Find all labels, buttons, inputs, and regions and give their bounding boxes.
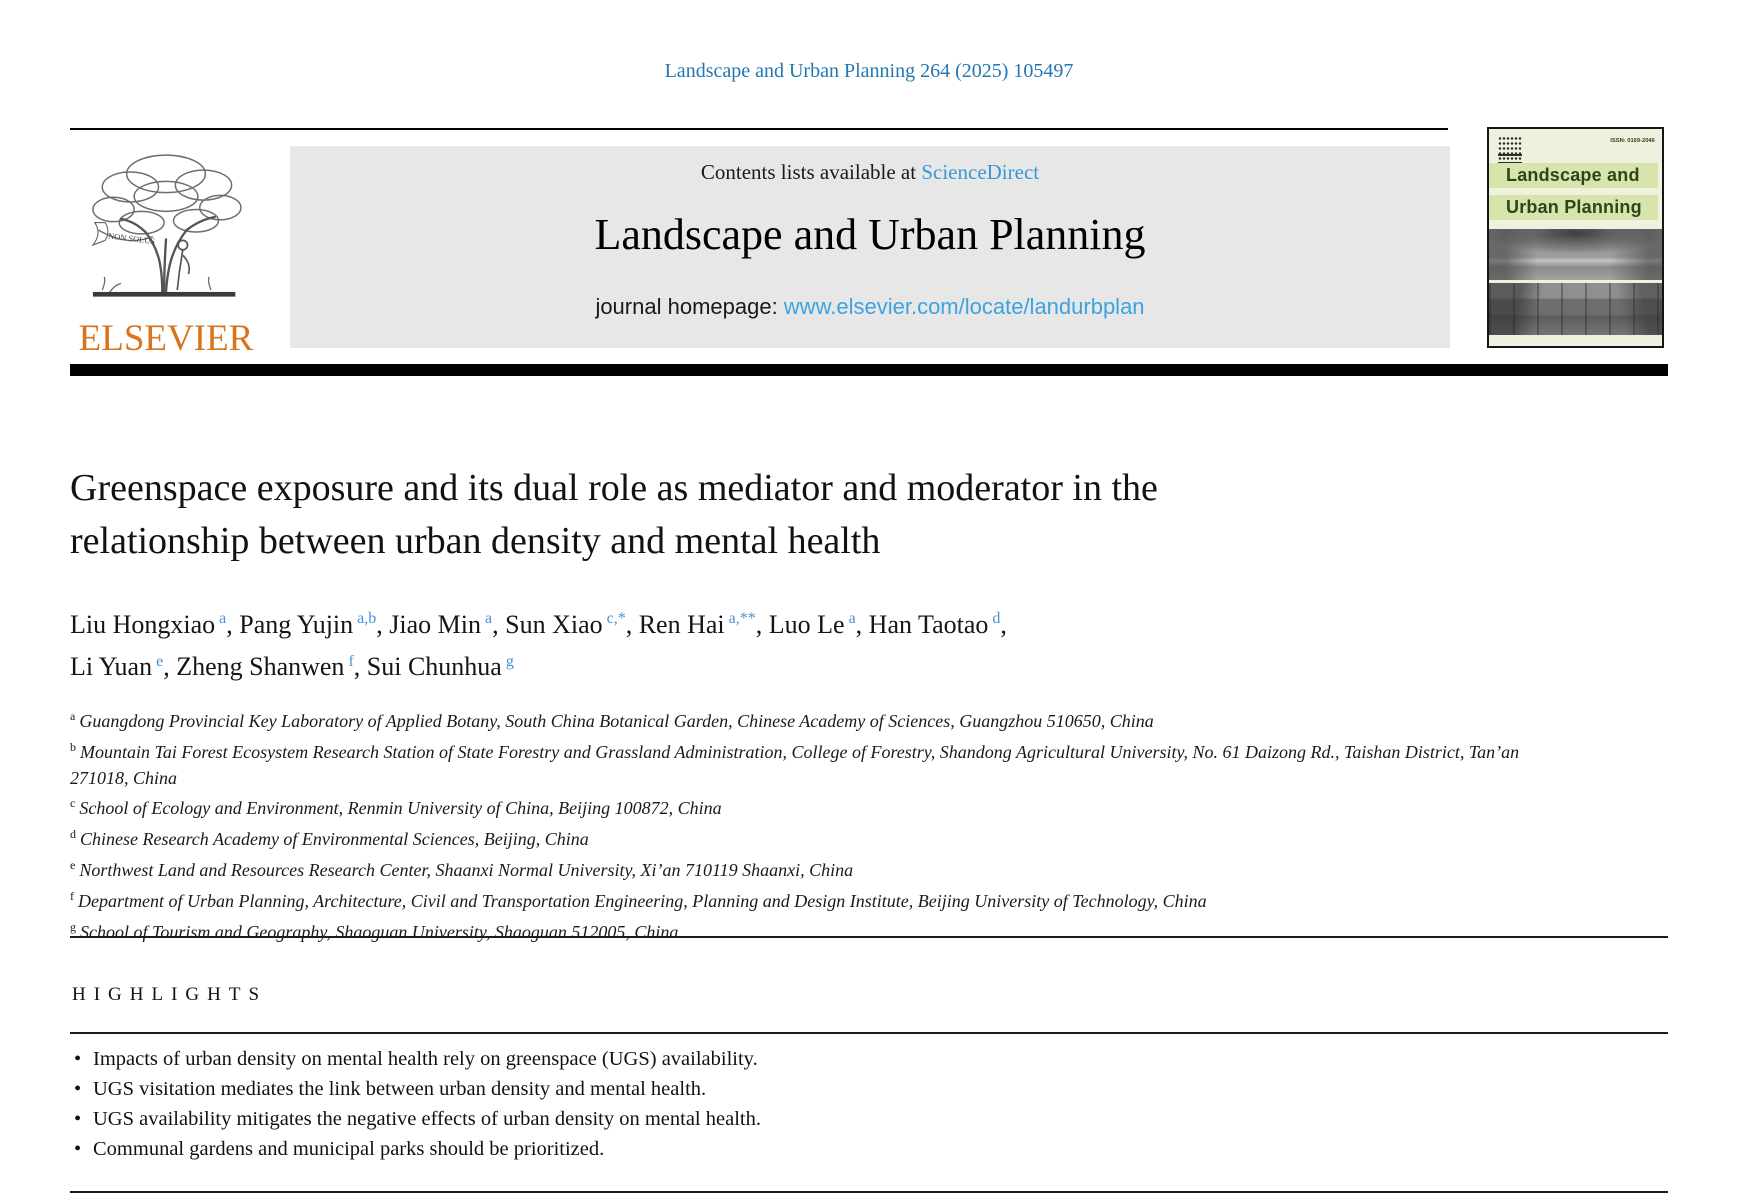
author-separator: , <box>756 610 769 639</box>
affiliation-text: School of Ecology and Environment, Renmi… <box>79 798 721 818</box>
header-thick-bar <box>70 364 1668 376</box>
author-separator: , <box>163 652 176 681</box>
highlights-mid-divider <box>70 1032 1668 1034</box>
author-separator: , <box>492 610 505 639</box>
highlight-item: UGS visitation mediates the link between… <box>72 1074 761 1104</box>
author-affiliation-superscript: c,* <box>607 610 626 627</box>
highlight-item: Communal gardens and municipal parks sho… <box>72 1134 761 1164</box>
affiliation-label: f <box>70 889 74 903</box>
author-affiliation-superscript: a,b <box>357 610 376 627</box>
affiliation-line: aGuangdong Provincial Key Laboratory of … <box>70 704 1525 735</box>
affiliation-line: eNorthwest Land and Resources Research C… <box>70 853 1525 884</box>
author-separator: , <box>626 610 639 639</box>
affiliation-label: b <box>70 740 76 754</box>
affiliation-list: aGuangdong Provincial Key Laboratory of … <box>70 704 1525 945</box>
author-name: Han Taotao <box>869 610 989 639</box>
cover-photo-trees <box>1489 229 1662 280</box>
affiliation-label: c <box>70 796 75 810</box>
author-name: Jiao Min <box>389 610 481 639</box>
journal-homepage-link[interactable]: www.elsevier.com/locate/landurbplan <box>784 294 1145 319</box>
author-affiliation-superscript: a,** <box>729 610 756 627</box>
affiliation-text: Guangdong Provincial Key Laboratory of A… <box>79 711 1153 731</box>
author: Sui Chunhuag <box>367 652 514 681</box>
author-name: Liu Hongxiao <box>70 610 215 639</box>
contents-text: Contents lists available at <box>701 160 921 184</box>
author-separator: , <box>856 610 869 639</box>
affiliation-label: e <box>70 858 75 872</box>
author-list: Liu Hongxiaoa, Pang Yujina,b, Jiao Mina,… <box>70 600 1520 685</box>
author-name: Pang Yujin <box>239 610 353 639</box>
affiliation-label: a <box>70 709 75 723</box>
author-separator: , <box>226 610 239 639</box>
author: Han Taotaod, <box>869 610 1007 639</box>
elsevier-tree-logo: NON SOLUS <box>72 142 260 306</box>
article-title: Greenspace exposure and its dual role as… <box>70 462 1158 568</box>
header-top-divider <box>70 128 1448 130</box>
affiliation-text: School of Tourism and Geography, Shaogua… <box>80 922 678 942</box>
highlight-item: UGS availability mitigates the negative … <box>72 1104 761 1134</box>
author-name: Ren Hai <box>639 610 725 639</box>
cover-photo-urban <box>1489 283 1662 335</box>
author: Zheng Shanwenf, <box>176 652 367 681</box>
journal-citation: Landscape and Urban Planning 264 (2025) … <box>70 60 1668 83</box>
author-separator: , <box>1000 610 1007 639</box>
highlights-top-divider <box>70 936 1668 938</box>
elsevier-wordmark: ELSEVIER <box>66 317 266 360</box>
author: Pang Yujina,b, <box>239 610 389 639</box>
affiliation-line: dChinese Research Academy of Environment… <box>70 822 1525 853</box>
author: Jiao Mina, <box>389 610 505 639</box>
author-name: Sui Chunhua <box>367 652 502 681</box>
non-solus-ribbon: NON SOLUS <box>93 223 156 247</box>
highlight-item: Impacts of urban density on mental healt… <box>72 1044 761 1074</box>
highlights-heading: HIGHLIGHTS <box>72 984 267 1006</box>
author: Liu Hongxiaoa, <box>70 610 239 639</box>
article-title-line2: relationship between urban density and m… <box>70 520 880 562</box>
highlights-list: Impacts of urban density on mental healt… <box>72 1044 761 1164</box>
affiliation-text: Northwest Land and Resources Research Ce… <box>79 860 853 880</box>
affiliation-line: fDepartment of Urban Planning, Architect… <box>70 884 1525 915</box>
author-separator: , <box>376 610 389 639</box>
journal-title: Landscape and Urban Planning <box>290 209 1450 260</box>
elsevier-figure-man <box>177 240 189 290</box>
affiliation-text: Department of Urban Planning, Architectu… <box>78 891 1207 911</box>
author-affiliation-superscript: g <box>506 653 514 670</box>
cover-issn: ISSN: 0169-2046 <box>1610 137 1655 143</box>
contents-line: Contents lists available at ScienceDirec… <box>290 160 1450 185</box>
elsevier-logo-block[interactable]: NON SOLUS ELSEVIER <box>66 142 266 360</box>
cover-elsevier-mini-logo <box>1498 136 1522 166</box>
page-bottom-divider <box>70 1191 1668 1193</box>
affiliation-label: d <box>70 827 76 841</box>
author-name: Sun Xiao <box>505 610 603 639</box>
author: Li Yuane, <box>70 652 176 681</box>
article-title-line1: Greenspace exposure and its dual role as… <box>70 467 1158 509</box>
homepage-label: journal homepage: <box>595 294 783 319</box>
journal-banner: Contents lists available at ScienceDirec… <box>290 146 1450 348</box>
affiliation-text: Chinese Research Academy of Environmenta… <box>80 829 589 849</box>
author: Ren Haia,**, <box>639 610 769 639</box>
affiliation-line: cSchool of Ecology and Environment, Renm… <box>70 791 1525 822</box>
affiliation-line: gSchool of Tourism and Geography, Shaogu… <box>70 915 1525 946</box>
affiliation-text: Mountain Tai Forest Ecosystem Research S… <box>70 742 1519 788</box>
affiliation-label: g <box>70 920 76 934</box>
sciencedirect-link[interactable]: ScienceDirect <box>921 160 1039 184</box>
author: Luo Lea, <box>769 610 869 639</box>
journal-cover-thumbnail[interactable]: ISSN: 0169-2046 Landscape and Urban Plan… <box>1487 127 1664 348</box>
cover-title-line1: Landscape and <box>1489 163 1658 188</box>
homepage-line: journal homepage: www.elsevier.com/locat… <box>290 294 1450 320</box>
author-affiliation-superscript: a <box>849 610 856 627</box>
cover-title-line2: Urban Planning <box>1489 195 1658 220</box>
affiliation-line: bMountain Tai Forest Ecosystem Research … <box>70 735 1525 792</box>
author-name: Li Yuan <box>70 652 152 681</box>
journal-article-first-page: Landscape and Urban Planning 264 (2025) … <box>0 0 1742 1204</box>
author-name: Zheng Shanwen <box>176 652 344 681</box>
author: Sun Xiaoc,*, <box>505 610 639 639</box>
author-name: Luo Le <box>769 610 845 639</box>
author-separator: , <box>354 652 367 681</box>
